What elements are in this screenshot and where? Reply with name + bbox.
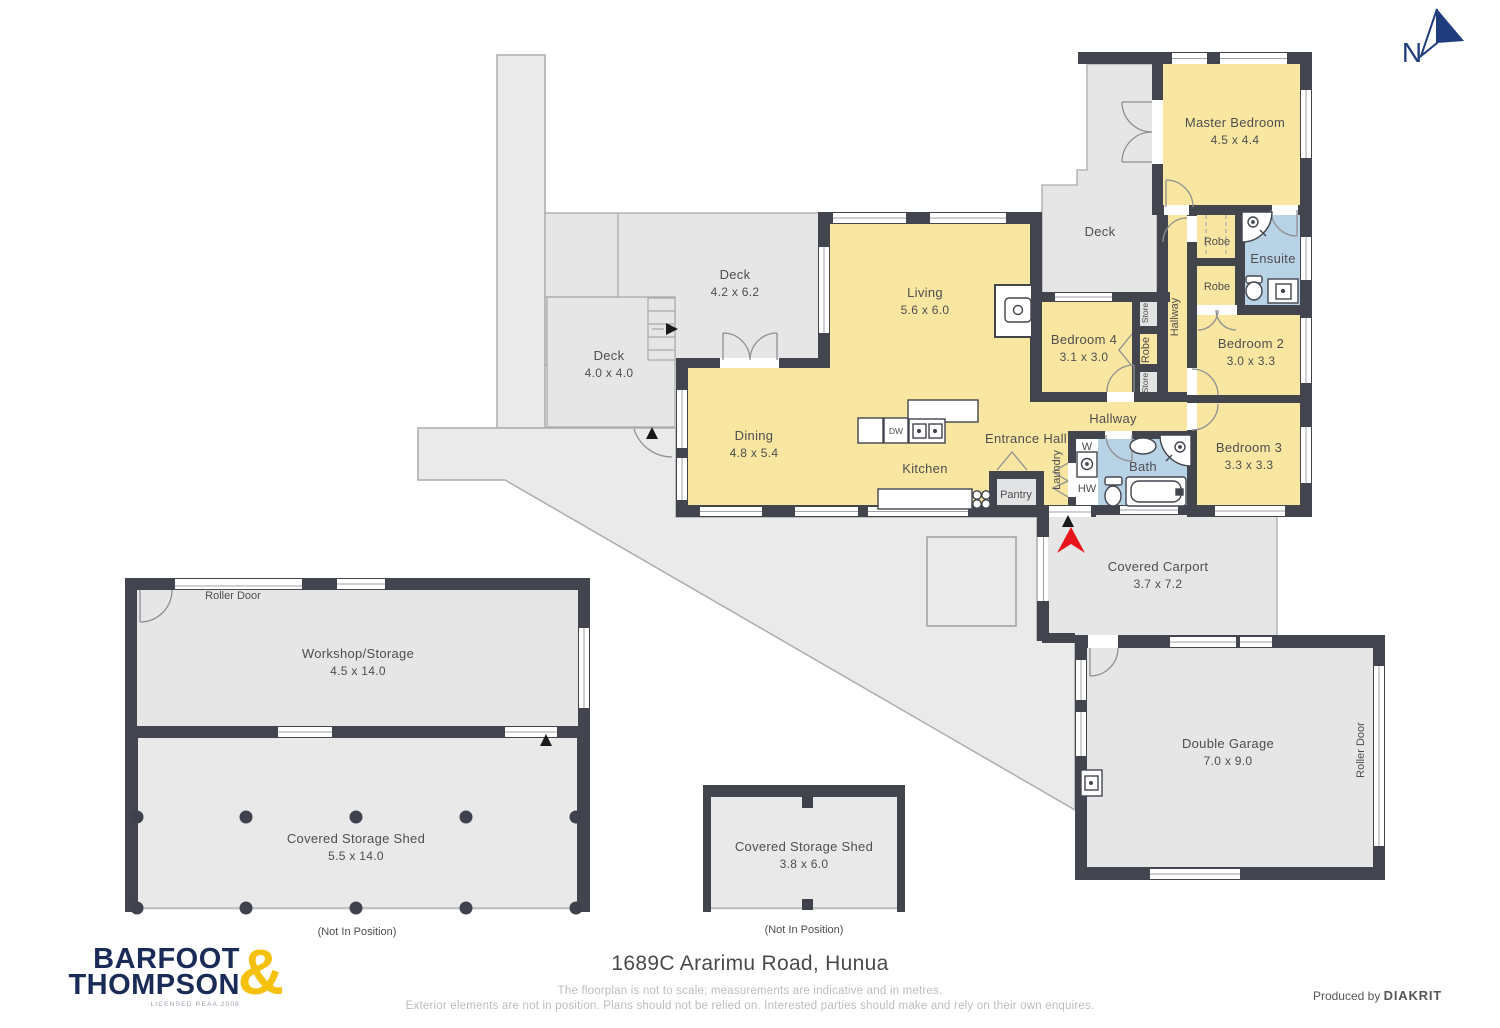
- floorplan-svg: N Master Bedroom 4.5 x 4.4 Deck Robe Ens…: [0, 0, 1500, 1028]
- fireplace: [995, 285, 1032, 337]
- produced-by-label: Produced by: [1313, 989, 1380, 1003]
- label-deck-upper-dims: 4.2 x 6.2: [711, 285, 760, 299]
- label-workshop: Workshop/Storage: [302, 646, 414, 661]
- label-bedroom2: Bedroom 2: [1218, 336, 1284, 351]
- disclaimer-line1: The floorplan is not to scale; measureme…: [0, 985, 1500, 997]
- label-garage: Double Garage: [1182, 736, 1274, 751]
- label-dining-dims: 4.8 x 5.4: [730, 446, 779, 460]
- north-arrow: N: [1402, 9, 1464, 68]
- label-shed-small-note: (Not In Position): [765, 924, 844, 936]
- label-carport: Covered Carport: [1108, 559, 1209, 574]
- label-shed-small-dims: 3.8 x 6.0: [780, 857, 829, 871]
- label-kitchen: Kitchen: [902, 461, 947, 476]
- carport-area: [1042, 513, 1277, 638]
- label-bedroom4-dims: 3.1 x 3.0: [1060, 350, 1109, 364]
- label-robe-col: Robe: [1140, 337, 1152, 363]
- label-entrance: Entrance Hall: [985, 431, 1067, 446]
- label-dining: Dining: [735, 428, 774, 443]
- label-deck-lower: Deck: [594, 348, 625, 363]
- garage-sink: [1081, 770, 1102, 796]
- label-laundry: Laundry: [1051, 450, 1063, 490]
- label-shed-large: Covered Storage Shed: [287, 831, 425, 846]
- label-roller-workshop: Roller Door: [205, 590, 261, 602]
- north-arrow-outline: [1421, 9, 1437, 56]
- shed-large-area: [125, 738, 590, 910]
- bedroom4-room: [1037, 297, 1138, 397]
- label-hallway-vert: Hallway: [1169, 297, 1181, 336]
- property-address: 1689C Ararimu Road, Hunua: [0, 952, 1500, 976]
- deck-master-area: [1042, 64, 1157, 300]
- label-store-bottom: Store: [1140, 373, 1150, 394]
- label-workshop-dims: 4.5 x 14.0: [330, 664, 386, 678]
- label-hw: HW: [1078, 483, 1097, 495]
- produced-by: Produced by DIAKRIT: [1313, 988, 1442, 1003]
- label-bedroom4: Bedroom 4: [1051, 332, 1117, 347]
- label-bedroom3: Bedroom 3: [1216, 440, 1282, 455]
- driveway-strip: [497, 55, 545, 428]
- label-master: Master Bedroom: [1185, 115, 1285, 130]
- label-master-dims: 4.5 x 4.4: [1211, 133, 1260, 147]
- north-arrow-solid: [1437, 9, 1464, 43]
- label-robe-mid: Robe: [1204, 281, 1230, 293]
- north-label: N: [1402, 37, 1422, 68]
- label-living: Living: [907, 285, 943, 300]
- disclaimer-line2: Exterior elements are not in position. P…: [0, 1000, 1500, 1012]
- label-deck-master: Deck: [1085, 224, 1116, 239]
- label-bedroom2-dims: 3.0 x 3.3: [1227, 354, 1276, 368]
- label-ensuite: Ensuite: [1250, 251, 1295, 266]
- label-roller-garage: Roller Door: [1355, 722, 1367, 778]
- label-bedroom3-dims: 3.3 x 3.3: [1225, 458, 1274, 472]
- label-shed-large-note: (Not In Position): [318, 926, 397, 938]
- label-w: W: [1082, 441, 1093, 453]
- label-hallway: Hallway: [1089, 411, 1137, 426]
- label-robe-top: Robe: [1204, 236, 1230, 248]
- label-deck-lower-dims: 4.0 x 4.0: [585, 366, 634, 380]
- label-shed-small: Covered Storage Shed: [735, 839, 873, 854]
- label-deck-upper: Deck: [720, 267, 751, 282]
- label-shed-large-dims: 5.5 x 14.0: [328, 849, 384, 863]
- label-pantry: Pantry: [1000, 489, 1032, 501]
- deck-stairs: [648, 298, 678, 360]
- label-bath: Bath: [1129, 459, 1157, 474]
- label-dw: DW: [889, 426, 903, 436]
- label-carport-dims: 3.7 x 7.2: [1134, 577, 1183, 591]
- label-store-top: Store: [1140, 303, 1150, 324]
- robe-top-room: [1192, 210, 1240, 258]
- producer-name: DIAKRIT: [1384, 988, 1442, 1003]
- label-living-dims: 5.6 x 6.0: [901, 303, 950, 317]
- label-garage-dims: 7.0 x 9.0: [1204, 754, 1253, 768]
- floorplan-page: N Master Bedroom 4.5 x 4.4 Deck Robe Ens…: [0, 0, 1500, 1028]
- laundry-washer: [1077, 452, 1097, 477]
